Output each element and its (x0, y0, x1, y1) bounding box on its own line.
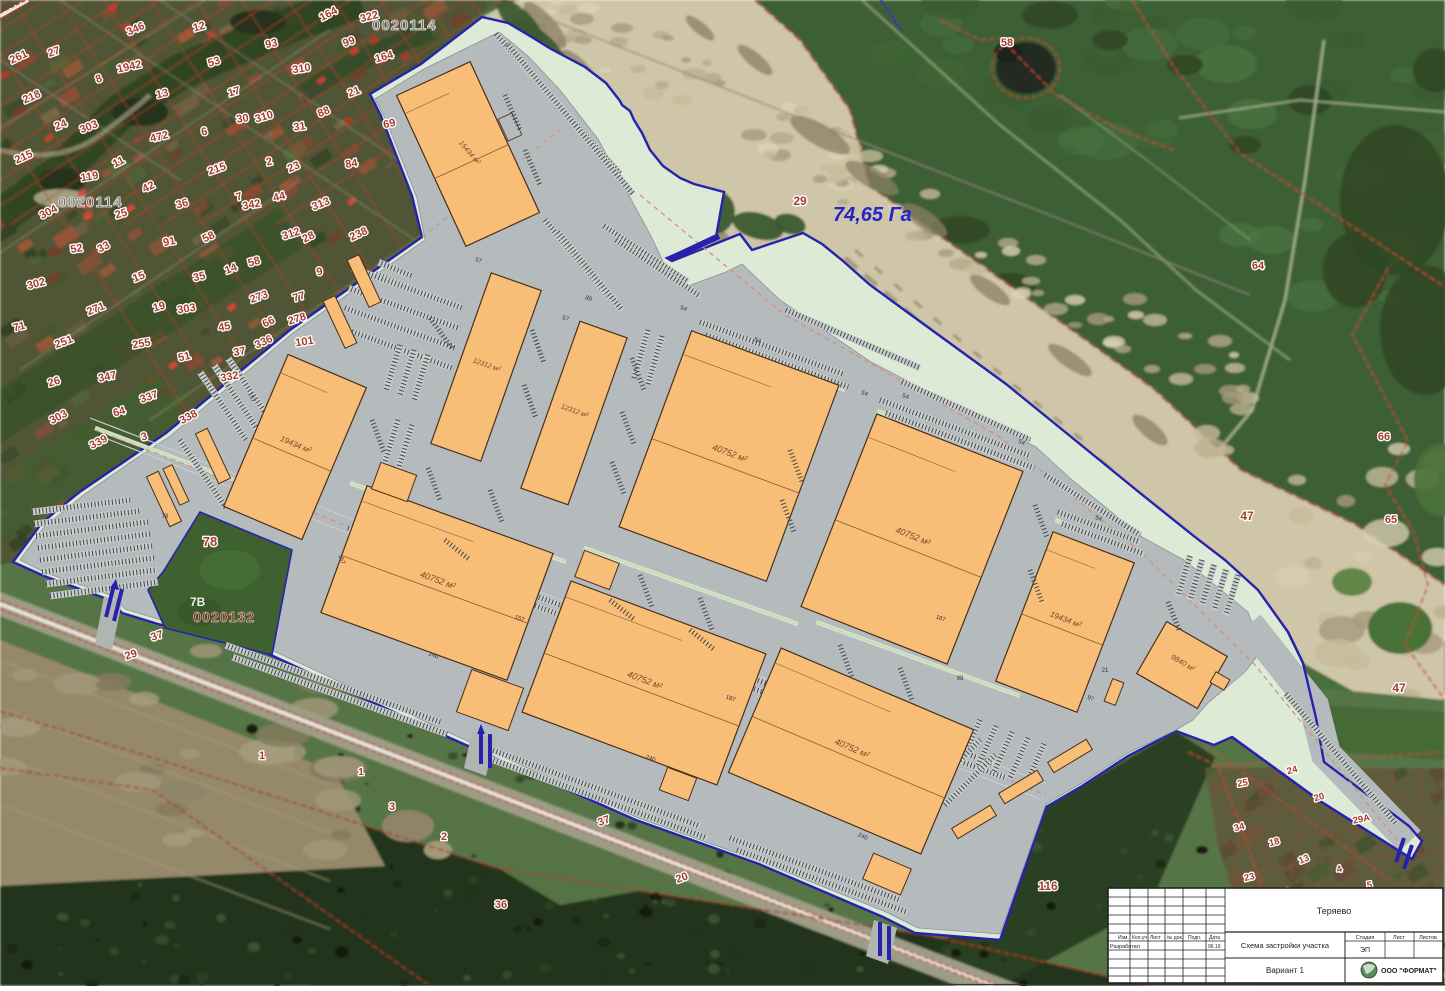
svg-text:0020132: 0020132 (193, 609, 255, 626)
svg-text:30: 30 (236, 112, 250, 126)
svg-text:21: 21 (1102, 668, 1109, 674)
svg-text:93: 93 (264, 37, 278, 51)
svg-text:116: 116 (1038, 879, 1058, 893)
svg-text:№ док.: № док. (1167, 935, 1183, 941)
svg-text:52: 52 (70, 242, 84, 256)
svg-text:65: 65 (1385, 514, 1397, 526)
svg-text:Изм.: Изм. (1118, 935, 1129, 941)
svg-text:74,65 Га: 74,65 Га (833, 204, 912, 226)
svg-text:0020114: 0020114 (372, 17, 437, 34)
svg-text:Дата: Дата (1209, 935, 1220, 941)
svg-text:47: 47 (1392, 681, 1406, 695)
svg-text:Разработал: Разработал (1110, 944, 1140, 950)
svg-text:2: 2 (441, 831, 447, 843)
svg-text:ООО "ФОРМАТ": ООО "ФОРМАТ" (1381, 968, 1437, 975)
svg-text:78: 78 (162, 514, 169, 520)
svg-text:58: 58 (1001, 37, 1013, 49)
svg-text:1: 1 (358, 767, 364, 778)
svg-text:29: 29 (793, 194, 807, 208)
svg-text:66: 66 (1378, 431, 1390, 443)
svg-text:37: 37 (232, 345, 246, 359)
svg-text:Лист: Лист (1393, 935, 1405, 941)
svg-text:Подп.: Подп. (1188, 935, 1201, 941)
svg-text:7B: 7B (190, 595, 206, 609)
svg-text:3: 3 (389, 801, 395, 813)
svg-text:ЭП: ЭП (1360, 947, 1370, 954)
svg-text:98: 98 (957, 676, 964, 682)
svg-text:78: 78 (203, 534, 217, 549)
svg-text:91: 91 (162, 235, 177, 249)
svg-text:47: 47 (1240, 509, 1254, 523)
svg-text:Листов: Листов (1419, 935, 1437, 941)
svg-text:Стадия: Стадия (1356, 935, 1375, 941)
svg-text:36: 36 (495, 899, 507, 911)
svg-text:31: 31 (293, 120, 307, 134)
svg-text:0020114: 0020114 (58, 194, 123, 211)
svg-text:Вариант 1: Вариант 1 (1266, 966, 1304, 975)
svg-text:Лист: Лист (1150, 935, 1162, 941)
svg-text:69: 69 (382, 117, 396, 131)
svg-text:Схема застройки участка: Схема застройки участка (1241, 941, 1330, 950)
svg-text:1: 1 (259, 750, 265, 762)
svg-text:Кол.уч: Кол.уч (1132, 935, 1147, 941)
svg-text:Теряево: Теряево (1317, 906, 1351, 916)
svg-text:45: 45 (217, 320, 231, 334)
svg-text:06.19: 06.19 (1208, 944, 1221, 950)
svg-text:64: 64 (1252, 260, 1265, 272)
